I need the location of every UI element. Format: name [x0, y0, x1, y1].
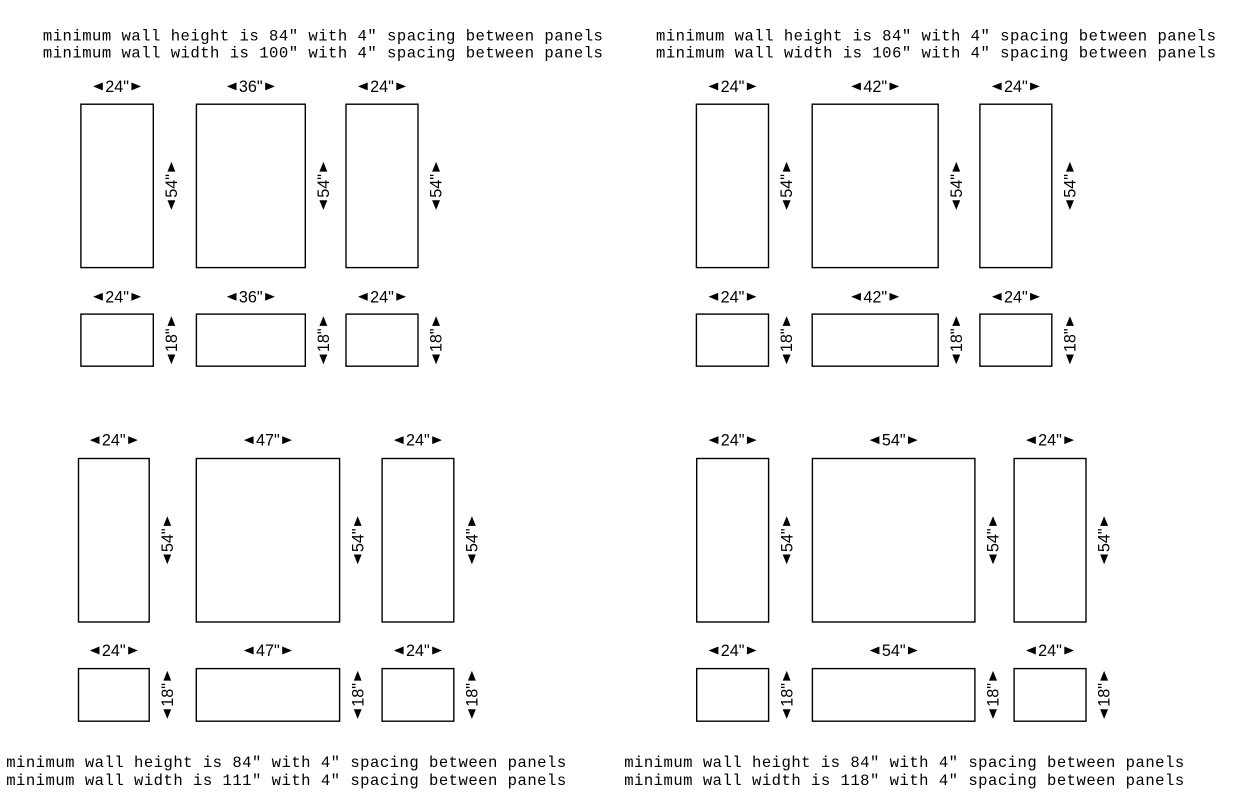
svg-text:24": 24" [370, 288, 394, 306]
svg-text:18": 18" [159, 683, 177, 707]
svg-text:54": 54" [985, 528, 1003, 552]
svg-text:18": 18" [948, 328, 966, 352]
svg-text:minimum wall width is 100" wit: minimum wall width is 100" with 4" spaci… [43, 45, 603, 63]
svg-text:54": 54" [948, 174, 966, 198]
svg-text:24": 24" [1004, 288, 1028, 306]
svg-text:18": 18" [778, 683, 796, 707]
svg-text:24": 24" [721, 642, 745, 660]
svg-text:54": 54" [778, 174, 796, 198]
svg-text:24": 24" [406, 642, 430, 660]
svg-text:54": 54" [882, 432, 906, 450]
svg-text:54": 54" [1062, 174, 1080, 198]
svg-text:minimum wall width is 106" wit: minimum wall width is 106" with 4" spaci… [656, 45, 1216, 63]
svg-text:24": 24" [105, 78, 129, 96]
svg-text:minimum wall height is 84" wit: minimum wall height is 84" with 4" spaci… [6, 754, 566, 772]
svg-text:24": 24" [721, 288, 745, 306]
svg-text:54": 54" [778, 528, 796, 552]
svg-text:minimum wall height is 84" wit: minimum wall height is 84" with 4" spaci… [624, 754, 1184, 772]
svg-text:36": 36" [239, 288, 263, 306]
svg-text:18": 18" [778, 328, 796, 352]
svg-text:18": 18" [428, 328, 446, 352]
svg-text:24": 24" [102, 642, 126, 660]
svg-text:24": 24" [105, 288, 129, 306]
svg-text:24": 24" [721, 432, 745, 450]
svg-text:54": 54" [315, 174, 333, 198]
svg-text:minimum wall height is 84" wit: minimum wall height is 84" with 4" spaci… [43, 28, 603, 46]
svg-text:24": 24" [1038, 432, 1062, 450]
svg-text:54": 54" [349, 528, 367, 552]
svg-text:54": 54" [1096, 528, 1114, 552]
svg-text:24": 24" [406, 432, 430, 450]
svg-text:47": 47" [256, 432, 280, 450]
svg-text:54": 54" [163, 174, 181, 198]
svg-text:18": 18" [349, 683, 367, 707]
svg-text:18": 18" [1096, 683, 1114, 707]
svg-text:24": 24" [102, 432, 126, 450]
svg-text:54": 54" [159, 528, 177, 552]
svg-text:42": 42" [863, 288, 887, 306]
svg-text:minimum wall width is 118" wit: minimum wall width is 118" with 4" spaci… [624, 772, 1184, 790]
svg-text:minimum wall width is 111" wit: minimum wall width is 111" with 4" spaci… [6, 772, 566, 790]
svg-text:18": 18" [315, 328, 333, 352]
svg-text:36": 36" [239, 78, 263, 96]
svg-text:54": 54" [882, 642, 906, 660]
svg-text:47": 47" [256, 642, 280, 660]
svg-text:42": 42" [863, 78, 887, 96]
svg-text:54": 54" [428, 174, 446, 198]
svg-text:54": 54" [464, 528, 482, 552]
svg-text:18": 18" [985, 683, 1003, 707]
svg-text:24": 24" [1038, 642, 1062, 660]
svg-text:24": 24" [370, 78, 394, 96]
svg-text:minimum wall height is 84" wit: minimum wall height is 84" with 4" spaci… [656, 28, 1216, 46]
svg-text:18": 18" [1062, 328, 1080, 352]
svg-text:24": 24" [1004, 78, 1028, 96]
svg-text:18": 18" [464, 683, 482, 707]
svg-text:18": 18" [163, 328, 181, 352]
svg-text:24": 24" [721, 78, 745, 96]
